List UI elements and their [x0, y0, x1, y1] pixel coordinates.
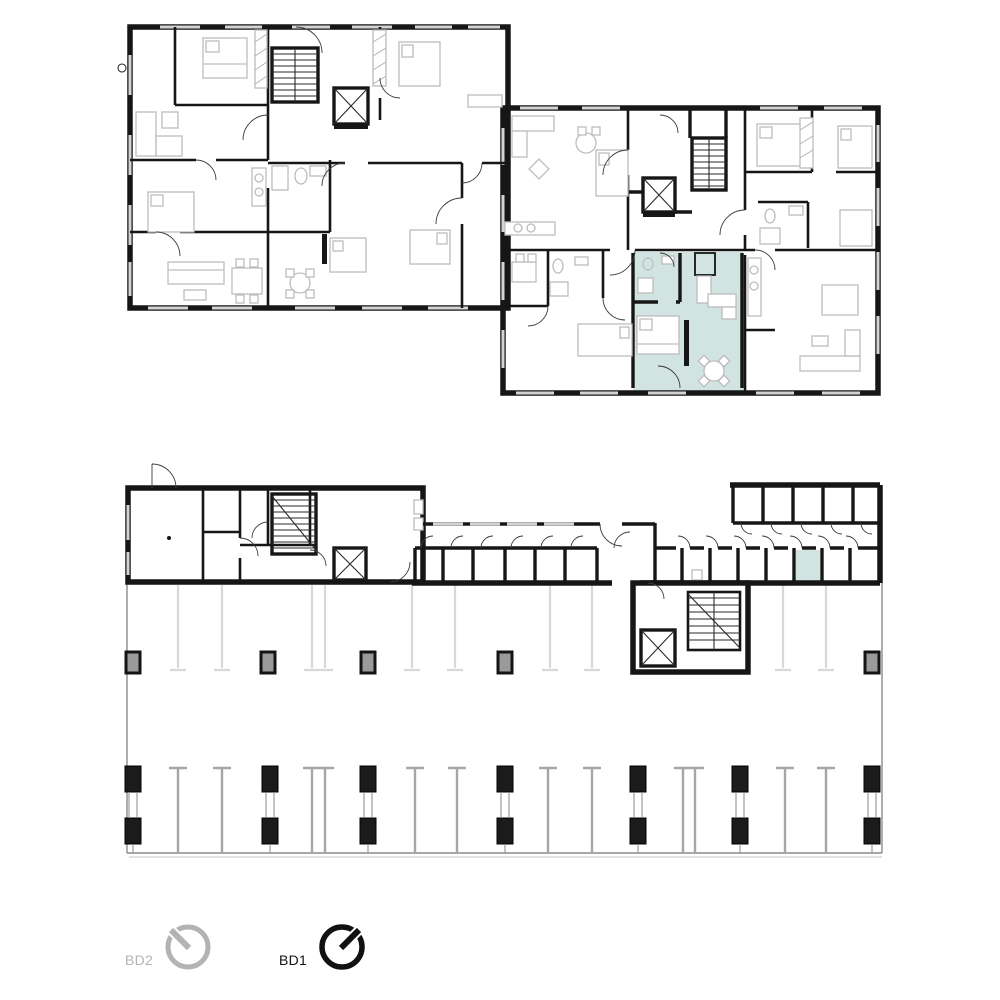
garage-service-block — [128, 464, 423, 582]
parking-area — [125, 582, 882, 857]
building-bd1-label: BD1 — [279, 953, 307, 967]
highlighted-storage-cell[interactable] — [796, 550, 820, 581]
plans-canvas — [0, 0, 1000, 900]
parking-columns-row1 — [126, 652, 879, 673]
floorplan-viewer: BD2 BD1 — [0, 0, 1000, 1000]
building-bd1-button[interactable]: BD1 — [279, 921, 368, 973]
compass-icon-bd2 — [162, 921, 214, 973]
parking-columns-row2 — [125, 766, 880, 853]
upper-floor-plan — [118, 27, 878, 393]
garage-stair-block — [633, 583, 748, 672]
survey-point-marker — [118, 64, 126, 72]
compass-icon-bd1 — [316, 921, 368, 973]
garage-plan — [125, 464, 882, 857]
building-bd2-button[interactable]: BD2 — [125, 921, 214, 973]
garage-storage-block-right — [652, 485, 880, 583]
building-bd2-label: BD2 — [125, 953, 153, 967]
